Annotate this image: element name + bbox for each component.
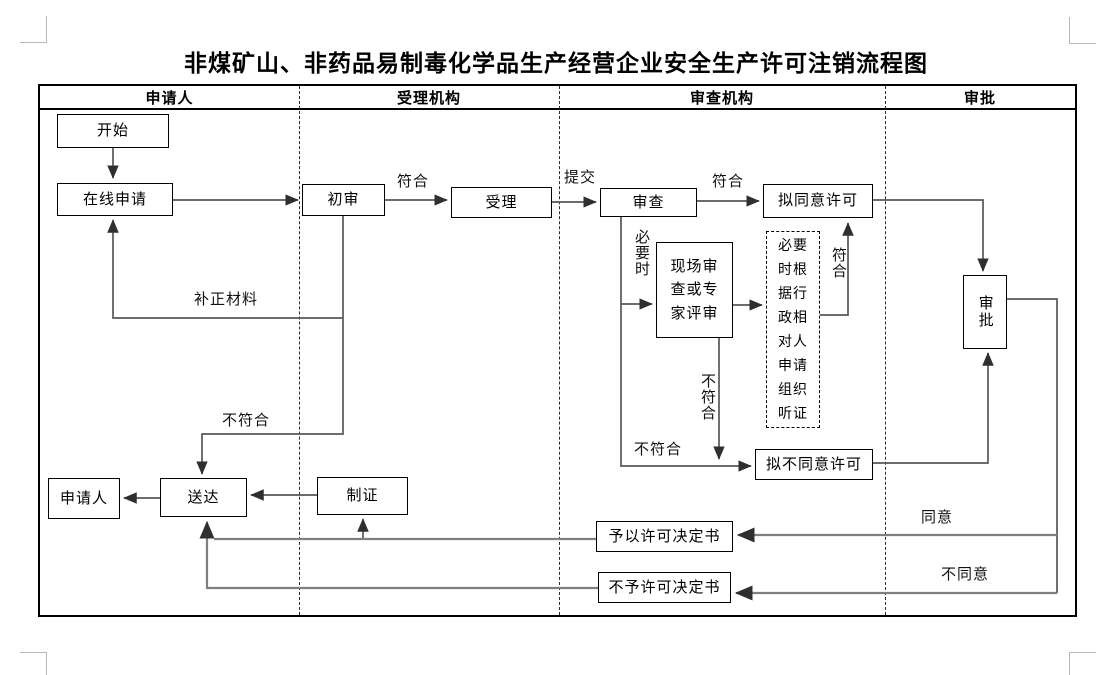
node-approval: 审批 [963,275,1007,349]
column-header-review-agency: 审查机构 [559,87,885,108]
node-start-label: 开始 [97,119,129,142]
node-preliminary-review-label: 初审 [327,188,359,211]
node-propose-approve-label: 拟同意许可 [778,189,858,212]
column-divider-3 [885,86,886,615]
label-conform-hearing: 符合 [829,247,850,279]
label-agree: 同意 [921,506,953,527]
margin-mark-top-left [20,16,47,43]
node-applicant-label: 申请人 [60,487,108,510]
node-preliminary-review: 初审 [302,184,385,216]
label-disagree: 不同意 [941,563,989,584]
table-header-row: 申请人 受理机构 审查机构 审批 [40,86,1075,110]
margin-mark-top-right [1069,17,1096,44]
node-online-apply: 在线申请 [57,183,173,216]
node-certificate: 制证 [317,477,408,515]
node-hearing-note: 必要时根据行政相对人申请组织听证 [766,231,820,428]
node-approval-label: 审批 [973,295,996,329]
node-propose-reject: 拟不同意许可 [755,449,873,480]
node-onsite-review: 现场审查或专家评审 [656,242,733,338]
margin-mark-bottom-right [1069,652,1096,675]
node-review-label: 审查 [632,191,664,214]
label-conform-initial: 符合 [397,170,429,191]
node-delivery: 送达 [160,478,247,517]
label-not-conform-initial: 不符合 [222,409,270,430]
node-acceptance: 受理 [451,187,552,218]
node-hearing-note-label: 必要时根据行政相对人申请组织听证 [777,234,809,426]
column-divider-2 [559,86,560,615]
node-certificate-label: 制证 [346,484,378,507]
column-divider-1 [299,86,300,615]
node-applicant: 申请人 [48,478,120,519]
flowchart-table: 申请人 受理机构 审查机构 审批 [38,84,1077,617]
column-header-approval: 审批 [885,87,1075,108]
node-propose-reject-label: 拟不同意许可 [766,453,862,476]
column-header-accepting-agency: 受理机构 [299,87,559,108]
node-acceptance-label: 受理 [485,191,517,214]
node-grant-decision: 予以许可决定书 [596,521,733,552]
page-title: 非煤矿山、非药品易制毒化学品生产经营企业安全生产许可注销流程图 [0,44,1112,78]
node-grant-decision-label: 予以许可决定书 [608,525,720,548]
label-conform-review: 符合 [712,170,744,191]
margin-mark-bottom-left [20,652,47,675]
node-deny-decision-label: 不予许可决定书 [608,576,720,599]
label-not-conform-onsite: 不符合 [698,373,719,421]
label-supplement-materials: 补正材料 [194,288,258,309]
label-not-conform-review: 不符合 [634,438,682,459]
document-page: 非煤矿山、非药品易制毒化学品生产经营企业安全生产许可注销流程图 申请人 受理机构… [0,0,1112,675]
column-header-applicant: 申请人 [40,87,299,108]
label-submit: 提交 [564,166,596,187]
label-when-necessary: 必要时 [632,229,653,277]
node-online-apply-label: 在线申请 [83,188,147,211]
node-start: 开始 [57,114,169,148]
node-deny-decision: 不予许可决定书 [598,572,731,603]
node-propose-approve: 拟同意许可 [763,184,873,218]
node-review: 审查 [600,188,697,217]
node-onsite-review-label: 现场审查或专家评审 [670,255,720,325]
node-delivery-label: 送达 [187,486,219,509]
